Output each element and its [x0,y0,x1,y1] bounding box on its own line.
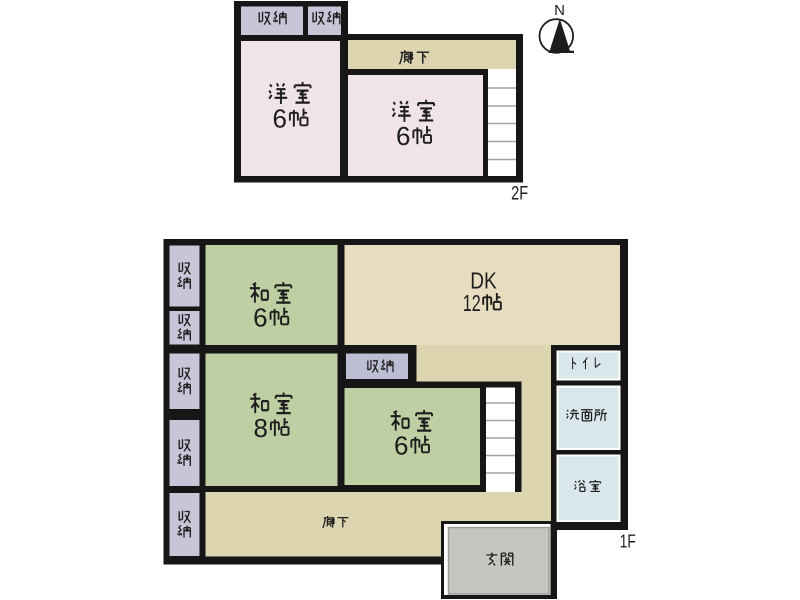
svg-text:1F: 1F [620,531,636,551]
svg-text:6: 6 [396,121,410,151]
svg-text:6: 6 [394,430,408,460]
svg-text:12: 12 [463,290,481,316]
svg-text:8: 8 [253,413,267,443]
svg-text:N: N [554,2,565,19]
svg-text:2F: 2F [511,183,528,204]
svg-text:6: 6 [253,302,267,332]
svg-text:6: 6 [272,103,286,133]
